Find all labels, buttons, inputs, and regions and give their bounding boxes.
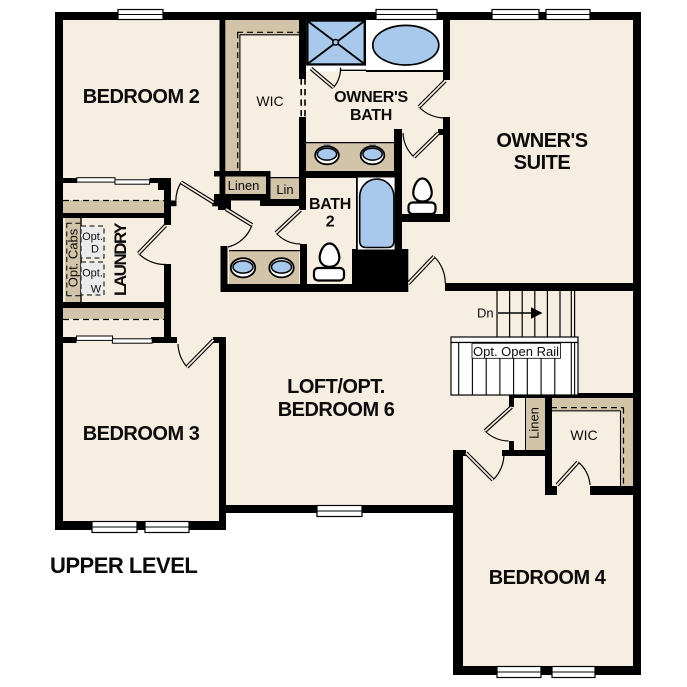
svg-text:BATH: BATH	[309, 196, 351, 213]
svg-text:WIC: WIC	[570, 427, 597, 443]
svg-text:Linen: Linen	[527, 407, 542, 439]
svg-text:LOFT/OPT.: LOFT/OPT.	[287, 376, 385, 398]
svg-text:OWNER'S: OWNER'S	[496, 130, 587, 152]
svg-text:Lin: Lin	[276, 182, 293, 197]
svg-text:Linen: Linen	[228, 178, 260, 193]
svg-text:BEDROOM 4: BEDROOM 4	[489, 567, 607, 589]
svg-text:Dn: Dn	[477, 306, 494, 321]
svg-text:BEDROOM 6: BEDROOM 6	[278, 399, 395, 421]
svg-text:Opt.: Opt.	[82, 231, 103, 243]
svg-text:2: 2	[326, 214, 335, 231]
svg-text:BEDROOM 2: BEDROOM 2	[83, 86, 200, 108]
svg-text:WIC: WIC	[256, 93, 283, 109]
svg-text:Opt.: Opt.	[82, 268, 103, 280]
svg-text:SUITE: SUITE	[514, 152, 571, 174]
svg-text:Opt. Open Rail: Opt. Open Rail	[473, 344, 559, 359]
svg-text:D: D	[91, 244, 99, 256]
svg-text:UPPER LEVEL: UPPER LEVEL	[50, 553, 197, 578]
svg-text:BATH: BATH	[350, 107, 392, 124]
svg-text:BEDROOM 3: BEDROOM 3	[83, 423, 200, 445]
svg-text:LAUNDRY: LAUNDRY	[111, 222, 130, 296]
svg-text:OWNER'S: OWNER'S	[334, 89, 408, 106]
svg-text:W: W	[91, 284, 102, 296]
svg-text:Opt. Cabs: Opt. Cabs	[65, 228, 80, 287]
